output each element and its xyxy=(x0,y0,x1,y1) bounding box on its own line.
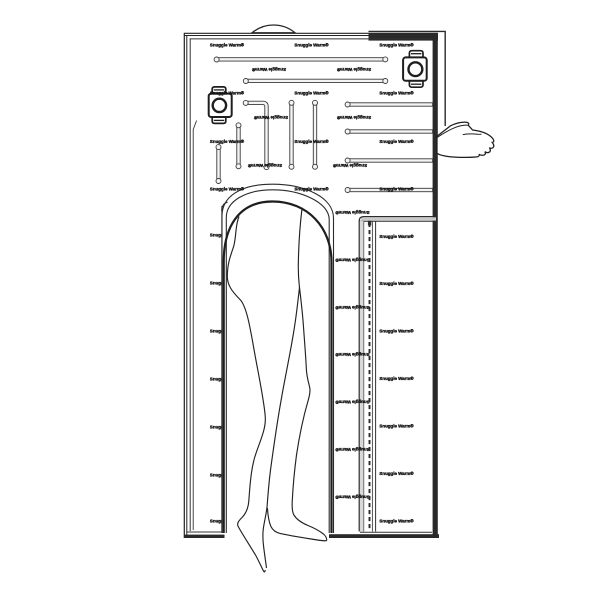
svg-text:Snuggle Warm®: Snuggle Warm® xyxy=(294,138,329,144)
svg-text:Snuggle Warm®: Snuggle Warm® xyxy=(210,186,245,192)
svg-text:Snuggle Warm®: Snuggle Warm® xyxy=(379,138,414,144)
svg-text:Snuggle Warm®: Snuggle Warm® xyxy=(336,67,371,73)
svg-text:Snuggle Warm®: Snuggle Warm® xyxy=(379,90,414,96)
svg-text:Snuggle Warm®: Snuggle Warm® xyxy=(294,186,329,192)
svg-text:Snuggle Warm®: Snuggle Warm® xyxy=(335,305,370,311)
svg-text:Snuggle Warm®: Snuggle Warm® xyxy=(379,42,414,48)
svg-text:Snuggle Warm®: Snuggle Warm® xyxy=(335,494,370,500)
svg-text:Snuggle Warm®: Snuggle Warm® xyxy=(379,375,414,381)
svg-text:Snuggle Warm®: Snuggle Warm® xyxy=(332,163,367,169)
svg-text:Snuggle Warm®: Snuggle Warm® xyxy=(247,163,282,169)
svg-text:Snuggle Warm®: Snuggle Warm® xyxy=(294,42,329,48)
svg-text:Snuggle Warm®: Snuggle Warm® xyxy=(379,518,414,524)
svg-text:Snuggle Warm®: Snuggle Warm® xyxy=(210,42,245,48)
svg-text:Snuggle Warm®: Snuggle Warm® xyxy=(294,90,329,96)
svg-text:Snuggle Warm®: Snuggle Warm® xyxy=(335,447,370,453)
svg-text:Snuggle Warm®: Snuggle Warm® xyxy=(210,138,245,144)
svg-text:Snuggle Warm®: Snuggle Warm® xyxy=(379,470,414,476)
svg-text:Snuggle Warm®: Snuggle Warm® xyxy=(379,423,414,429)
svg-text:Snuggle Warm®: Snuggle Warm® xyxy=(379,233,414,239)
svg-text:Snuggle Warm®: Snuggle Warm® xyxy=(335,399,370,405)
svg-text:Snuggle Warm®: Snuggle Warm® xyxy=(379,280,414,286)
svg-text:Snuggle Warm®: Snuggle Warm® xyxy=(379,328,414,334)
svg-text:Snuggle Warm®: Snuggle Warm® xyxy=(336,115,371,121)
svg-text:Snuggle Warm®: Snuggle Warm® xyxy=(379,186,414,192)
svg-text:Snuggle Warm®: Snuggle Warm® xyxy=(251,67,286,73)
svg-text:Snuggle Warm®: Snuggle Warm® xyxy=(335,210,370,216)
svg-text:Snuggle Warm®: Snuggle Warm® xyxy=(253,115,288,121)
svg-text:Snuggle Warm®: Snuggle Warm® xyxy=(210,90,245,96)
svg-text:Snuggle Warm®: Snuggle Warm® xyxy=(335,257,370,263)
svg-text:Snuggle Warm®: Snuggle Warm® xyxy=(335,352,370,358)
